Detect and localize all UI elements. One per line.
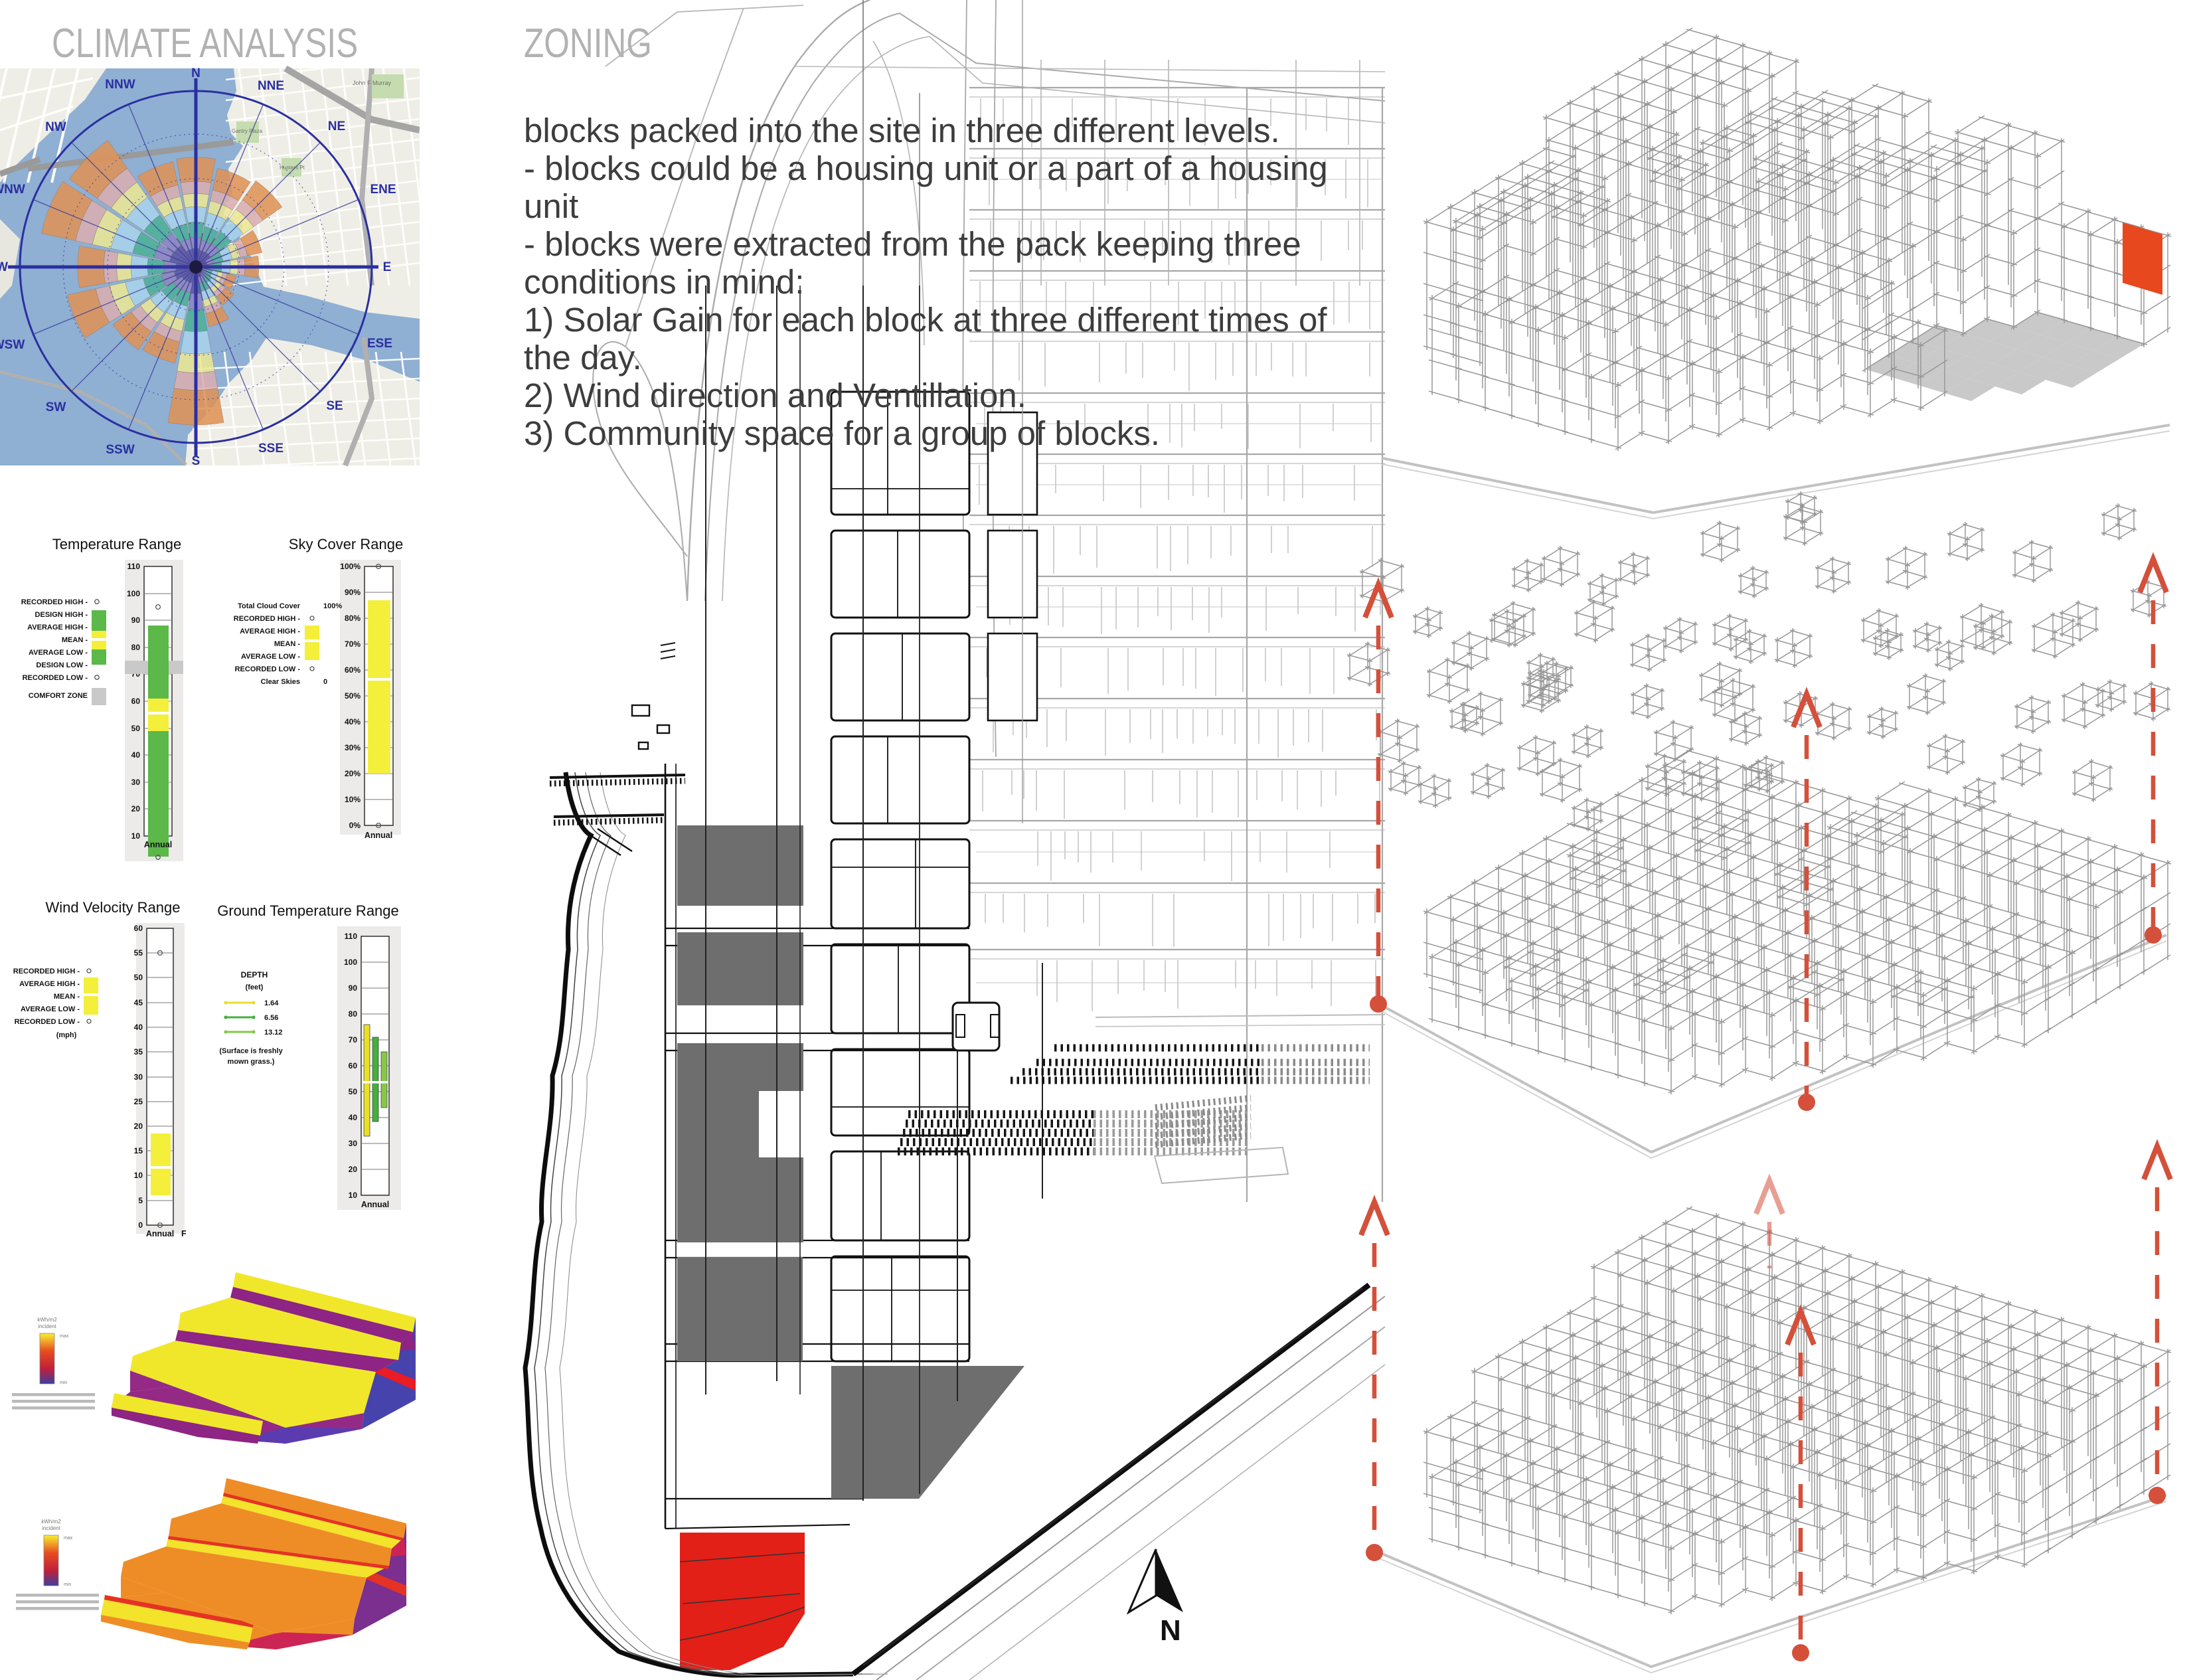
svg-text:AVERAGE HIGH -: AVERAGE HIGH -	[240, 628, 300, 635]
svg-text:0%: 0%	[349, 821, 361, 830]
svg-text:60: 60	[134, 924, 143, 933]
svg-text:Annual: Annual	[361, 1200, 389, 1209]
svg-text:AVERAGE HIGH -: AVERAGE HIGH -	[19, 980, 80, 988]
svg-text:80: 80	[131, 643, 141, 652]
svg-text:Ground Temperature Range: Ground Temperature Range	[217, 902, 399, 919]
svg-text:max: max	[64, 1536, 73, 1541]
svg-text:50%: 50%	[345, 691, 361, 701]
svg-text:0: 0	[323, 678, 327, 686]
svg-text:100%: 100%	[340, 562, 361, 571]
svg-text:60: 60	[131, 697, 141, 706]
svg-text:90: 90	[349, 983, 358, 993]
svg-text:13.12: 13.12	[264, 1029, 283, 1037]
svg-text:20: 20	[131, 804, 141, 813]
svg-text:0: 0	[138, 1220, 143, 1230]
svg-text:kWh/m2: kWh/m2	[37, 1317, 57, 1323]
svg-text:AVERAGE HIGH -: AVERAGE HIGH -	[27, 624, 88, 631]
svg-text:RECORDED LOW -: RECORDED LOW -	[15, 1018, 80, 1026]
svg-text:70: 70	[349, 1035, 358, 1045]
svg-text:Annual: Annual	[365, 831, 392, 840]
svg-text:30: 30	[131, 778, 141, 787]
svg-text:110: 110	[345, 932, 358, 941]
svg-text:Annual: Annual	[146, 1229, 174, 1238]
svg-text:60: 60	[349, 1061, 358, 1070]
svg-text:F: F	[181, 1229, 187, 1238]
svg-text:Annual: Annual	[144, 840, 172, 849]
svg-text:incident: incident	[38, 1323, 56, 1329]
svg-text:50: 50	[349, 1087, 358, 1096]
svg-text:60%: 60%	[345, 665, 361, 675]
svg-text:(feet): (feet)	[246, 983, 264, 991]
svg-text:40: 40	[349, 1113, 358, 1122]
svg-text:RECORDED LOW -: RECORDED LOW -	[23, 674, 88, 682]
svg-text:Temperature Range: Temperature Range	[52, 536, 181, 552]
svg-text:RECORDED HIGH -: RECORDED HIGH -	[13, 967, 80, 975]
svg-text:RECORDED LOW -: RECORDED LOW -	[235, 665, 301, 673]
svg-text:AVERAGE LOW -: AVERAGE LOW -	[21, 1005, 80, 1013]
svg-text:10%: 10%	[345, 795, 361, 804]
svg-text:20: 20	[349, 1165, 358, 1174]
svg-text:Clear Skies: Clear Skies	[261, 678, 300, 686]
svg-text:Sky Cover Range: Sky Cover Range	[289, 536, 403, 552]
svg-text:min: min	[64, 1582, 71, 1587]
svg-text:COMFORT ZONE: COMFORT ZONE	[29, 692, 88, 700]
svg-text:50: 50	[134, 973, 143, 982]
svg-text:15: 15	[134, 1146, 143, 1155]
svg-text:MEAN -: MEAN -	[274, 640, 300, 648]
svg-text:70%: 70%	[345, 639, 361, 649]
svg-text:DESIGN HIGH -: DESIGN HIGH -	[35, 611, 88, 619]
svg-text:40: 40	[131, 750, 141, 760]
svg-text:10: 10	[131, 831, 141, 841]
svg-text:40%: 40%	[345, 717, 361, 726]
svg-text:RECORDED HIGH -: RECORDED HIGH -	[21, 598, 88, 606]
svg-text:35: 35	[134, 1047, 143, 1056]
svg-text:100: 100	[344, 958, 357, 967]
svg-text:6.56: 6.56	[264, 1014, 278, 1022]
svg-text:Total Cloud Cover: Total Cloud Cover	[238, 602, 301, 610]
svg-text:20%: 20%	[345, 769, 361, 778]
svg-text:10: 10	[134, 1171, 143, 1180]
svg-text:kWh/m2: kWh/m2	[41, 1519, 61, 1525]
svg-text:incident: incident	[42, 1525, 60, 1531]
svg-text:30: 30	[349, 1139, 358, 1148]
svg-text:55: 55	[134, 948, 143, 958]
svg-text:10: 10	[349, 1191, 358, 1200]
svg-text:AVERAGE LOW -: AVERAGE LOW -	[241, 653, 300, 661]
svg-text:Wind Velocity Range: Wind Velocity Range	[46, 899, 181, 916]
svg-text:90%: 90%	[345, 588, 361, 597]
svg-text:100: 100	[127, 589, 140, 598]
svg-text:30%: 30%	[345, 743, 361, 752]
svg-text:MEAN -: MEAN -	[62, 636, 88, 644]
svg-text:5: 5	[138, 1196, 143, 1205]
svg-text:1.64: 1.64	[264, 999, 279, 1007]
svg-text:45: 45	[134, 998, 143, 1007]
svg-text:25: 25	[134, 1097, 143, 1106]
svg-text:90: 90	[131, 616, 141, 625]
svg-text:40: 40	[134, 1023, 143, 1032]
svg-text:110: 110	[127, 562, 141, 571]
svg-text:N: N	[1160, 1614, 1181, 1647]
svg-text:AVERAGE LOW -: AVERAGE LOW -	[29, 649, 88, 657]
svg-text:100%: 100%	[323, 602, 342, 610]
svg-text:80%: 80%	[345, 614, 361, 623]
svg-text:50: 50	[131, 724, 141, 733]
svg-text:30: 30	[134, 1072, 143, 1082]
svg-text:80: 80	[349, 1009, 358, 1019]
svg-text:mown grass.): mown grass.)	[228, 1058, 275, 1066]
svg-text:20: 20	[134, 1122, 143, 1131]
svg-text:RECORDED HIGH -: RECORDED HIGH -	[234, 615, 301, 623]
svg-text:DESIGN LOW -: DESIGN LOW -	[36, 661, 88, 669]
svg-text:(Surface is freshly: (Surface is freshly	[219, 1047, 283, 1055]
svg-text:min: min	[60, 1381, 67, 1385]
svg-text:(mph): (mph)	[56, 1031, 77, 1039]
svg-text:MEAN -: MEAN -	[54, 993, 80, 1001]
svg-text:DEPTH: DEPTH	[241, 970, 268, 979]
svg-text:max: max	[60, 1334, 69, 1339]
